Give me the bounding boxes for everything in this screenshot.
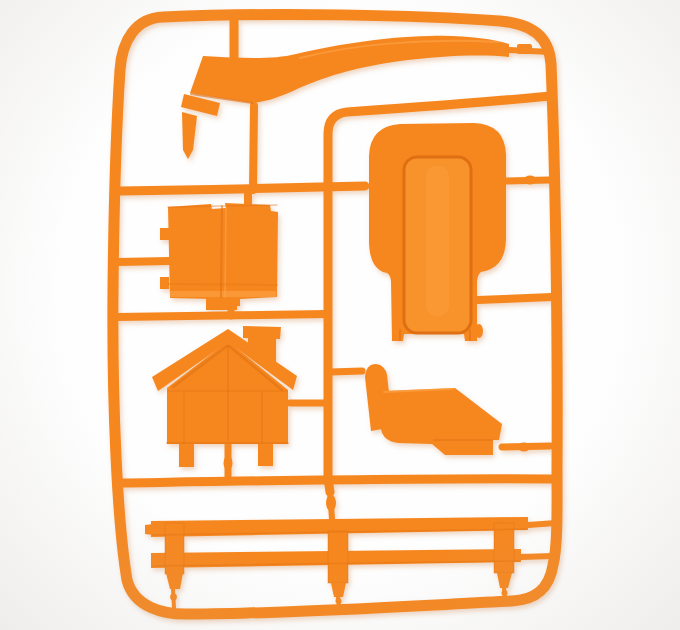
wall-panel-fold-highlight — [225, 206, 226, 297]
fence-post-left-stake — [166, 573, 183, 589]
fence-post-right-stake — [497, 573, 512, 588]
curve-end-tab — [182, 112, 197, 159]
wall-panel-bottom-face — [170, 291, 276, 297]
gate-seat-top — [330, 371, 362, 372]
pin-ball-right — [502, 590, 508, 596]
gate-rail-top-right — [528, 523, 556, 525]
gate-notch-seat — [518, 443, 530, 452]
fence-post-right — [494, 523, 514, 588]
gate-bulge-house — [224, 456, 233, 470]
wall-panel-crease — [169, 284, 277, 285]
fence-post-middle-body — [328, 531, 348, 583]
gate-rail2-right — [521, 556, 553, 557]
gate-notch-curve — [517, 44, 532, 54]
slide-corner-nub — [475, 324, 483, 338]
fence-post-left — [165, 523, 184, 589]
pin-ball-middle — [336, 598, 342, 604]
runner-box-left — [118, 261, 169, 262]
wall-panel-tab-lower — [160, 277, 169, 289]
runner-row2-horizontal — [117, 314, 328, 317]
part-fence — [145, 517, 528, 597]
fence-rail-end-tab — [145, 524, 153, 535]
house-leg-left — [179, 444, 194, 467]
wall-panel-fold-line — [221, 206, 222, 297]
sprue-assembly — [113, 14, 557, 614]
runner-row3-horizontal — [120, 479, 551, 483]
house-leg-right — [258, 444, 273, 466]
fence-post-right-body — [494, 523, 514, 573]
runner-slide-lower-right — [478, 297, 552, 300]
fence-post-middle-stake — [331, 583, 346, 597]
part-wall-panel — [160, 203, 278, 310]
slide-channel-highlight — [426, 166, 449, 316]
sprue-photo-canvas — [0, 0, 680, 630]
gate-bulge-fence — [326, 495, 336, 511]
part-slide-panel — [369, 123, 506, 341]
part-bench-seat — [365, 364, 502, 455]
gate-notch-slide — [524, 176, 536, 185]
seat-body — [381, 388, 502, 455]
wall-panel-tab-bottom — [206, 297, 237, 310]
house-chimney-cap — [243, 326, 281, 339]
pin-ball-left — [170, 594, 177, 601]
wall-panel-tab-upper — [160, 228, 169, 240]
runner-below-curve — [253, 106, 254, 190]
photo-of-orange-sprue — [0, 0, 680, 630]
